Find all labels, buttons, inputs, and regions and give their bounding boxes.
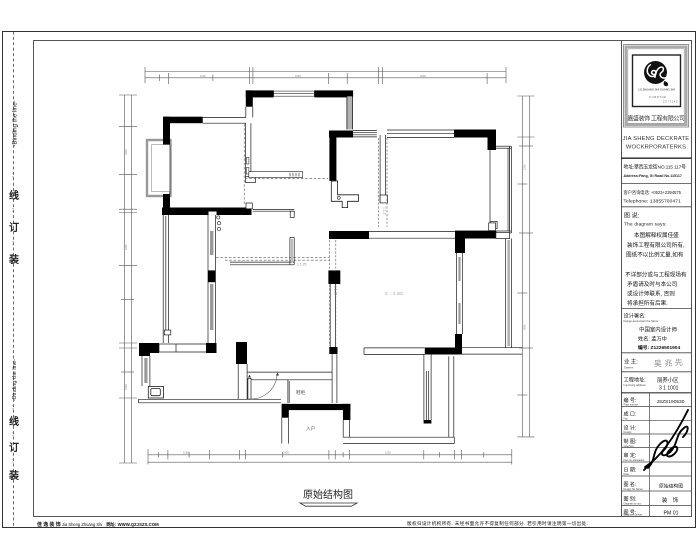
svg-text:图 别:: 图 别: [624,495,637,502]
svg-text:图 说:: 图 说: [624,212,640,220]
svg-text:JIA SHENG DECKRATE: JIA SHENG DECKRATE [623,136,690,142]
svg-text:客户咨询电话: +0523+2394575: 客户咨询电话: +0523+2394575 [624,189,682,196]
svg-text:Fax:: Fax: [624,417,629,420]
svg-text:Plate number:: Plate number: [624,404,640,407]
svg-text:业 主:: 业 主: [624,358,638,366]
svg-text:Design accountant the Name:: Design accountant the Name: [624,319,660,323]
svg-text:图纸不以比例丈量,如有: 图纸不以比例丈量,如有 [626,251,684,259]
svg-text:C U R N T H E: C U R N T H E [649,95,666,99]
svg-text:Improving address:: Improving address: [624,383,647,387]
svg-text:3 1 1001: 3 1 1001 [659,385,679,391]
svg-text:装饰工程有限公司所有,: 装饰工程有限公司所有, [627,241,685,249]
svg-text:地址:攀西玉龙街NO.115 117号: 地址:攀西玉龙街NO.115 117号 [624,164,687,171]
svg-text:Diagram number:: Diagram number: [624,513,644,516]
svg-text:Address:Fang, Gi Road No.11511: Address:Fang, Gi Road No.115117 [624,174,682,178]
svg-text:PM 01: PM 01 [664,510,679,516]
svg-text:工程地址:: 工程地址: [624,375,646,383]
svg-text:Graphics:: Graphics: [624,445,635,448]
svg-text:Design No Name:: Design No Name: [624,488,644,491]
svg-text:WOCKRPORATERKS: WOCKRPORATERKS [626,145,686,151]
svg-text:编号: Z1226501904: 编号: Z1226501904 [638,344,680,351]
svg-text:Diagram do not:: Diagram do not: [624,502,642,505]
svg-text:原始结构图: 原始结构图 [659,482,683,489]
svg-text:Date:: Date: [624,473,630,476]
svg-text:J.S ZHUANG SHI GUANG SHI: J.S ZHUANG SHI GUANG SHI [638,88,675,92]
svg-text:设计署名:: 设计署名: [624,311,646,319]
svg-text:矛盾请及时与本公司: 矛盾请及时与本公司 [627,280,677,288]
svg-text:吴兆先: 吴兆先 [654,357,686,369]
svg-text:装 饰: 装 饰 [662,496,680,504]
svg-text:不详部分或与工程现场有: 不详部分或与工程现场有 [625,271,687,279]
svg-text:本图解释权属佳盛: 本图解释权属佳盛 [634,231,679,239]
svg-text:嘉盛装饰 工程有限公司: 嘉盛装饰 工程有限公司 [627,114,685,122]
svg-text:JSZS190530: JSZS190530 [657,399,685,405]
svg-text:The diagram says:: The diagram says: [624,221,667,226]
svg-text:丽养小区: 丽养小区 [657,376,679,384]
svg-text:姓名: 孟万中: 姓名: 孟万中 [638,335,667,343]
svg-text:Fact-no attestation:: Fact-no attestation: [624,459,646,462]
svg-text:中国室内设计师: 中国室内设计师 [639,326,677,334]
svg-text:Design:: Design: [624,431,633,434]
svg-text:2 3 7 7 1 4 5: 2 3 7 7 1 4 5 [663,100,678,104]
svg-text:Telephone: 13855700471: Telephone: 13855700471 [624,198,682,204]
svg-text:Owner:: Owner: [624,365,634,369]
svg-text:图 名:: 图 名: [624,481,637,488]
svg-text:将承担所有后果.: 将承担所有后果. [627,299,668,307]
svg-text:或设计师联系, 否则: 或设计师联系, 否则 [627,290,675,298]
